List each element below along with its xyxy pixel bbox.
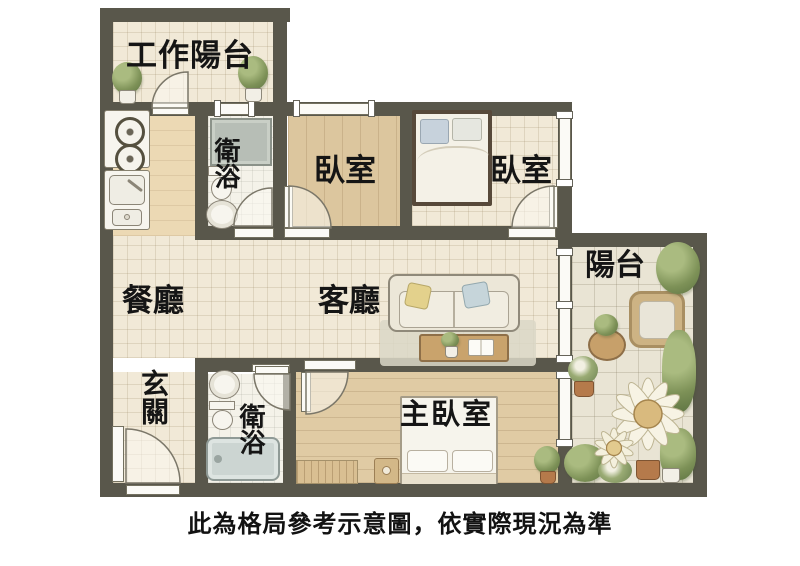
- flower-plant-icon: [598, 458, 632, 483]
- wall-bedroom-divider: [400, 116, 412, 240]
- room-label-entry: 玄關: [139, 369, 167, 425]
- window-cap: [293, 100, 300, 117]
- plant-pot: [245, 88, 262, 102]
- window-cap: [214, 100, 221, 117]
- bedroom-left-window: [296, 103, 372, 115]
- wall-bath-lower-right: [283, 372, 296, 483]
- sofa-seat-divider: [453, 292, 455, 327]
- work-balcony-door-opening: [152, 103, 189, 115]
- master-bedroom-window: [559, 374, 571, 446]
- bedroom-right-window: [559, 114, 571, 184]
- window-cap: [556, 111, 573, 119]
- master-door-opening: [304, 360, 356, 370]
- stove-burner-icon: [115, 117, 145, 147]
- pillow-yellow: [404, 282, 432, 310]
- plant-pot: [574, 381, 594, 397]
- bedroom-left-door-panel: [284, 186, 293, 228]
- plant-pot: [662, 468, 680, 483]
- room-label-living: 客廳: [318, 285, 380, 318]
- caption: 此為格局參考示意圖，依實際現況為準: [0, 504, 800, 539]
- plant-icon: [662, 330, 696, 412]
- wall-bottom-outer: [100, 483, 707, 497]
- room-label-bedroom-left: 臥室: [314, 155, 376, 188]
- room-label-bath-upper: 衛浴: [212, 137, 238, 189]
- room-label-master-bedroom: 主臥室: [400, 399, 493, 429]
- washbasin-icon: [206, 200, 238, 229]
- wall-left-outer: [100, 8, 113, 497]
- bedroom-right-door-panel: [549, 186, 558, 228]
- window-cap: [556, 439, 573, 447]
- pillow: [452, 118, 482, 141]
- wall-top-work-balcony: [100, 8, 290, 22]
- washbasin-icon: [209, 370, 240, 399]
- plant-icon: [656, 242, 700, 294]
- nightstand-knob-icon: [382, 466, 391, 475]
- bathtub-drain-icon: [214, 455, 222, 463]
- master-door-panel: [301, 372, 311, 412]
- plant-pot: [636, 460, 660, 480]
- plant-pot: [540, 471, 556, 484]
- bath-lower-door-panel: [255, 366, 289, 374]
- window-cap: [368, 100, 375, 117]
- bath-upper-door-opening: [234, 228, 274, 238]
- toilet-bowl-icon: [212, 410, 233, 430]
- window-cap: [248, 100, 255, 117]
- floor-plan: 工作陽台 衛浴 臥室 臥室 陽台 餐廳 客廳 玄關 衛浴 主臥室 此為格局參考示…: [0, 0, 800, 566]
- room-label-bath-lower: 衛浴: [237, 403, 263, 455]
- pillow: [420, 119, 449, 144]
- duvet-fold: [417, 146, 489, 174]
- entry-door-opening: [126, 485, 180, 495]
- flower-plant-icon: [568, 356, 598, 384]
- bed-footboard: [402, 473, 496, 484]
- plant-icon: [534, 446, 560, 474]
- window-cap: [556, 248, 573, 256]
- coffee-table: [419, 334, 509, 362]
- table-plant-pot: [445, 346, 458, 358]
- toilet-tank: [209, 401, 235, 410]
- open-book-icon: [468, 339, 494, 356]
- pillow: [407, 450, 448, 472]
- bedroom-left-door-opening: [284, 228, 330, 238]
- bench: [296, 460, 358, 484]
- room-label-work-balcony: 工作陽台: [126, 40, 254, 73]
- sink-drain-icon: [124, 214, 130, 220]
- window-cap: [556, 301, 573, 309]
- room-label-balcony: 陽台: [585, 250, 645, 282]
- wall-bath-upper-left: [195, 116, 208, 240]
- room-label-dining: 餐廳: [122, 285, 184, 318]
- table-plant-icon: [594, 314, 618, 336]
- plant-pot: [119, 90, 136, 104]
- pillow-blue: [461, 281, 491, 309]
- window-cap: [556, 179, 573, 187]
- entry-door-panel: [112, 426, 124, 482]
- wall-work-balcony-right: [273, 8, 287, 116]
- room-label-bedroom-right: 臥室: [490, 155, 552, 188]
- bedroom-right-door-opening: [508, 228, 556, 238]
- pillow: [452, 450, 493, 472]
